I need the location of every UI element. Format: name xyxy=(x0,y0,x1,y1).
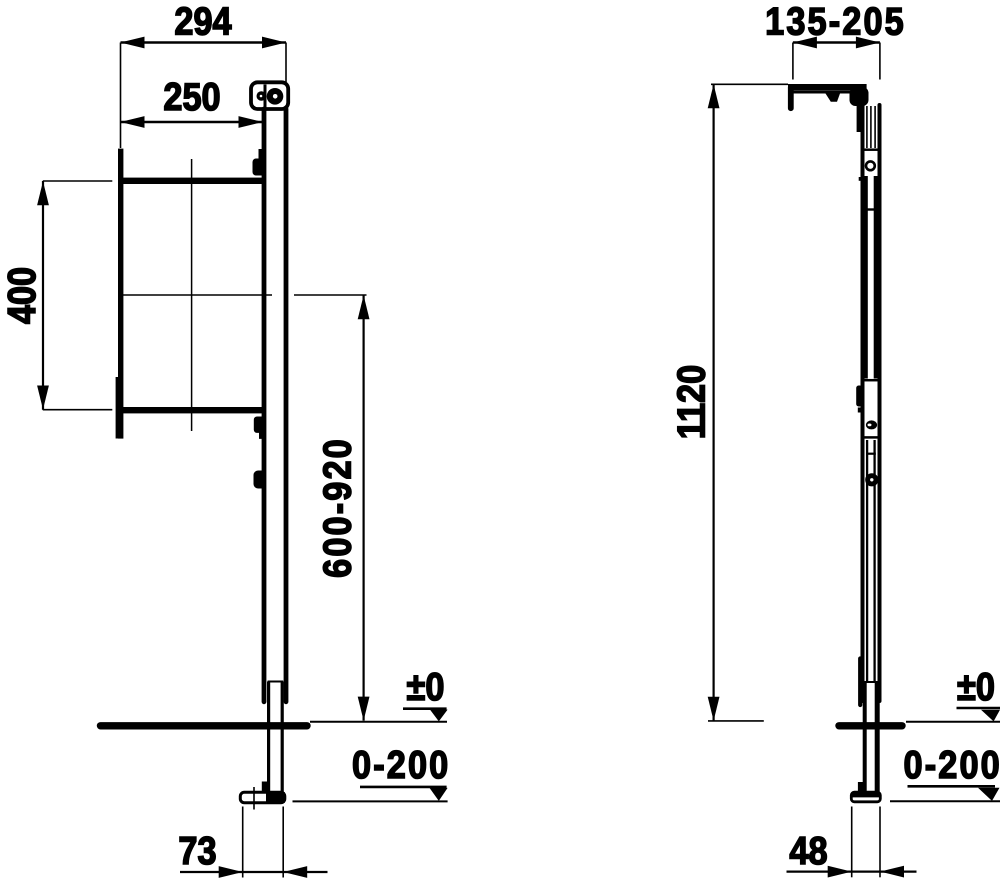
svg-text:135-205: 135-205 xyxy=(765,0,906,43)
svg-text:600-920: 600-920 xyxy=(315,437,359,578)
svg-text:0-200: 0-200 xyxy=(352,743,450,787)
svg-text:250: 250 xyxy=(163,75,220,119)
svg-text:±0: ±0 xyxy=(407,665,445,709)
svg-text:400: 400 xyxy=(0,267,44,324)
svg-text:48: 48 xyxy=(789,829,827,873)
svg-text:±0: ±0 xyxy=(957,665,995,709)
svg-text:0-200: 0-200 xyxy=(904,743,1000,787)
svg-text:73: 73 xyxy=(178,829,216,873)
svg-text:1120: 1120 xyxy=(670,365,714,439)
svg-text:294: 294 xyxy=(174,0,232,43)
